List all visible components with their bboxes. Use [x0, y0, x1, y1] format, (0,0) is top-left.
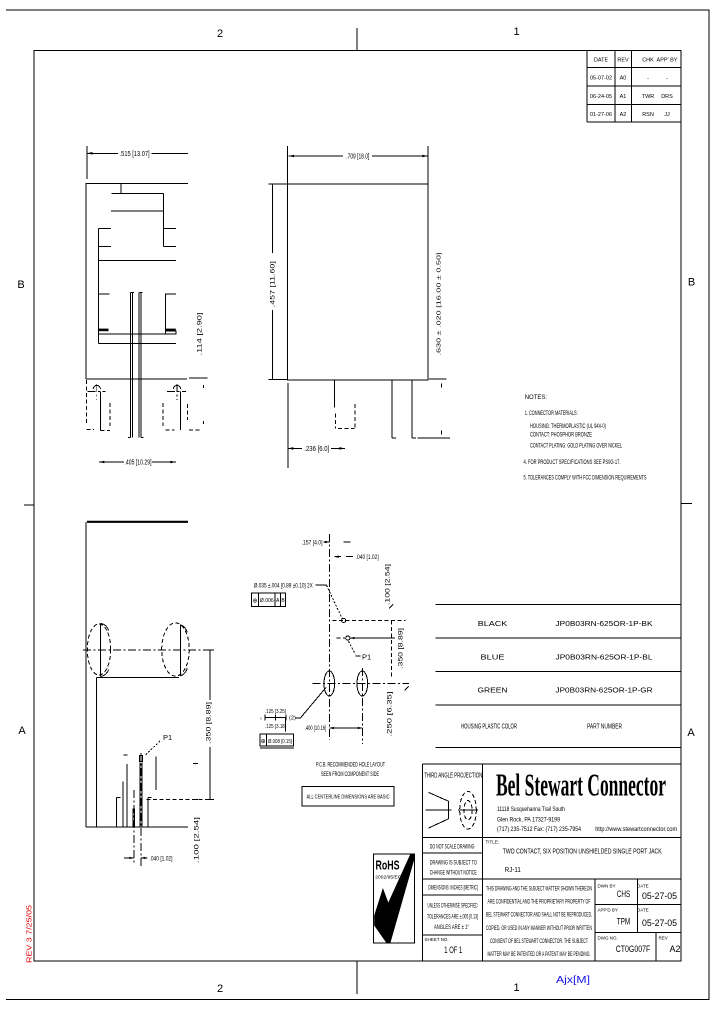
- svg-text:.515 [13.07]: .515 [13.07]: [120, 151, 150, 158]
- svg-text:.125 [3.18]: .125 [3.18]: [265, 724, 286, 730]
- svg-text:JP0B03RN-625OR-1P-GR: JP0B03RN-625OR-1P-GR: [556, 687, 653, 694]
- svg-text:.125 [3.25]: .125 [3.25]: [265, 709, 286, 715]
- svg-text:DWN BY: DWN BY: [598, 884, 616, 889]
- svg-text:RSN: RSN: [642, 112, 654, 118]
- svg-text:A2: A2: [620, 112, 627, 118]
- svg-text:Ø.006: Ø.006: [260, 598, 274, 604]
- svg-text:B: B: [688, 277, 695, 289]
- svg-text:2: 2: [217, 983, 223, 995]
- svg-text:.236 [6.0]: .236 [6.0]: [304, 446, 329, 453]
- svg-text:Ø.008 [0.15]: Ø.008 [0.15]: [268, 739, 293, 745]
- svg-text:P1: P1: [362, 653, 371, 662]
- svg-text:2: 2: [217, 28, 223, 40]
- svg-text:P.C.B. RECOMMENDED HOLE LAYOUT: P.C.B. RECOMMENDED HOLE LAYOUT: [316, 763, 385, 769]
- svg-text:CONTACT PLATING: GOLD PLATING: CONTACT PLATING: GOLD PLATING OVER NICKE…: [530, 444, 622, 450]
- svg-text:05-07-02: 05-07-02: [590, 76, 612, 82]
- svg-text:B: B: [17, 279, 24, 291]
- svg-text:1: 1: [513, 26, 519, 38]
- svg-text:1. CONNECTOR MATERIALS:: 1. CONNECTOR MATERIALS:: [525, 411, 578, 417]
- svg-text:.709 [18.0]: .709 [18.0]: [346, 154, 369, 161]
- svg-text:A1: A1: [620, 94, 627, 100]
- svg-text:JP0B03RN-625OR-1P-BL: JP0B03RN-625OR-1P-BL: [556, 654, 653, 661]
- svg-text:CT0G007F: CT0G007F: [616, 944, 651, 954]
- svg-text:1 OF 1: 1 OF 1: [444, 945, 462, 956]
- svg-text:APP'D BY: APP'D BY: [598, 908, 618, 913]
- svg-text:4. FOR PRODUCT SPECIFICATIONS: 4. FOR PRODUCT SPECIFICATIONS SEE PS0G-1…: [524, 460, 621, 466]
- svg-text:DATE: DATE: [637, 908, 649, 913]
- svg-text:BLACK: BLACK: [478, 621, 508, 628]
- svg-text:RoHS: RoHS: [376, 859, 400, 873]
- svg-text:APP' BY: APP' BY: [657, 58, 678, 64]
- svg-text:HOUSING PLASTIC COLOR: HOUSING PLASTIC COLOR: [461, 724, 517, 731]
- svg-text:TITLE:: TITLE:: [486, 840, 500, 845]
- svg-text:CONTACT: PHOSPHOR BRONZE: CONTACT: PHOSPHOR BRONZE: [530, 433, 592, 439]
- svg-text:CONSENT OF BEL STEWART CONNECT: CONSENT OF BEL STEWART CONNECTOR. THE SU…: [490, 938, 588, 945]
- svg-text:ANGLES ARE ± 1°: ANGLES ARE ± 1°: [434, 924, 469, 931]
- svg-text:THIRD ANGLE PROJECTION: THIRD ANGLE PROJECTION: [424, 773, 482, 780]
- svg-text:1: 1: [513, 982, 519, 994]
- svg-text:REV: REV: [659, 936, 668, 941]
- svg-text:(2): (2): [289, 716, 296, 722]
- svg-text:.040 [1.02]: .040 [1.02]: [356, 555, 379, 561]
- svg-text:-: -: [666, 76, 668, 82]
- svg-text:THIS DRAWING AND THE SUBJECT M: THIS DRAWING AND THE SUBJECT MATTER SHOW…: [486, 886, 592, 893]
- svg-text:BEL STEWART CONNECTOR AND SHAL: BEL STEWART CONNECTOR AND SHALL NOT BE R…: [486, 912, 592, 919]
- svg-text:.100 [2.54]: .100 [2.54]: [194, 817, 201, 863]
- svg-text:SHEET NO.: SHEET NO.: [425, 937, 449, 942]
- svg-text:GREEN: GREEN: [478, 687, 508, 694]
- svg-text:COPIED, OR USED IN ANY MANNER: COPIED, OR USED IN ANY MANNER WITHOUT PR…: [486, 925, 592, 932]
- svg-text:RJ-11: RJ-11: [505, 867, 521, 874]
- svg-text:ARE CONFIDENTIAL AND THE PROPR: ARE CONFIDENTIAL AND THE PROPRIETARY PRO…: [488, 899, 591, 906]
- svg-text:.405 [10.29]: .405 [10.29]: [125, 460, 152, 467]
- svg-text:DRAWING IS SUBJECT TO: DRAWING IS SUBJECT TO: [430, 859, 477, 866]
- svg-text:JP0B03RN-625OR-1P-BK: JP0B03RN-625OR-1P-BK: [556, 621, 653, 628]
- svg-text:.100 [2.54]: .100 [2.54]: [385, 564, 392, 605]
- svg-text:REV 3 7/25/05: REV 3 7/25/05: [27, 905, 34, 963]
- svg-text:BLUE: BLUE: [481, 654, 505, 661]
- svg-text:TWR: TWR: [642, 94, 655, 100]
- svg-text:CHANGE WITHOUT NOTICE: CHANGE WITHOUT NOTICE: [430, 870, 477, 877]
- svg-text:A0: A0: [620, 76, 627, 82]
- svg-text:05-27-05: 05-27-05: [642, 918, 677, 928]
- svg-text:.040 [1.02]: .040 [1.02]: [150, 856, 173, 863]
- svg-text:‹: ‹: [260, 716, 262, 722]
- svg-text:Bel Stewart Connector: Bel Stewart Connector: [496, 767, 666, 803]
- svg-text:(717) 235-7512 Fax: (717) 23: (717) 235-7512 Fax: (717) 235-7954: [497, 827, 582, 833]
- svg-text:01-27-06: 01-27-06: [590, 112, 612, 118]
- svg-text:⊕: ⊕: [261, 739, 266, 745]
- svg-text:.457 [11.60]: .457 [11.60]: [271, 261, 277, 307]
- svg-text:REV: REV: [617, 58, 629, 64]
- svg-text:Ø.035 ±.004 [0.89 ±0.10] 2X: Ø.035 ±.004 [0.89 ±0.10] 2X: [254, 584, 313, 590]
- svg-text:P1: P1: [163, 733, 172, 742]
- svg-text:PART NUMBER: PART NUMBER: [587, 724, 622, 731]
- svg-text:.114 [2.90]: .114 [2.90]: [198, 312, 204, 355]
- svg-text:NOTES:: NOTES:: [525, 395, 548, 401]
- svg-text:.350 [8.89]: .350 [8.89]: [206, 702, 213, 744]
- svg-text:DIMENSIONS: INCHES [METRIC]: DIMENSIONS: INCHES [METRIC]: [428, 884, 478, 891]
- svg-text:MATTER MAY BE PATENTED OR A PA: MATTER MAY BE PATENTED OR A PATENT MAY B…: [488, 951, 591, 958]
- svg-text:11118 Susquehanna Trail South: 11118 Susquehanna Trail South: [497, 807, 565, 813]
- svg-text:.630 ± .020 [16.00 ± 0.50]: .630 ± .020 [16.00 ± 0.50]: [437, 252, 443, 356]
- svg-text:DWG NO.: DWG NO.: [598, 936, 618, 941]
- svg-text:TWO CONTACT, SIX POSITION UNSH: TWO CONTACT, SIX POSITION UNSHIELDED SIN…: [503, 849, 662, 856]
- svg-text:2002/95/EC: 2002/95/EC: [375, 875, 402, 881]
- svg-text:Ajx[M]: Ajx[M]: [556, 975, 590, 986]
- svg-text:SEEN FROM COMPONENT SIDE: SEEN FROM COMPONENT SIDE: [321, 772, 379, 778]
- svg-text:Glen Rock, PA 17327-9199: Glen Rock, PA 17327-9199: [497, 817, 561, 823]
- svg-text:TPM: TPM: [617, 917, 631, 928]
- svg-text:CHS: CHS: [617, 889, 631, 900]
- svg-text:A: A: [18, 725, 26, 737]
- svg-text:http://www.stewartconnector.co: http://www.stewartconnector.com: [595, 827, 677, 833]
- svg-text:.250 [6.35]: .250 [6.35]: [387, 691, 394, 736]
- svg-text:-: -: [647, 76, 649, 82]
- svg-text:CHK: CHK: [642, 58, 654, 64]
- svg-text:⊕: ⊕: [252, 598, 257, 604]
- svg-text:5. TOLERANCES COMPLY WITH FCC: 5. TOLERANCES COMPLY WITH FCC DIMENSION …: [524, 476, 647, 482]
- svg-text:JJ: JJ: [664, 112, 670, 118]
- svg-text:.400 [10.16]: .400 [10.16]: [305, 726, 327, 732]
- svg-text:.350 [8.89]: .350 [8.89]: [397, 628, 404, 669]
- svg-text:ALL CENTERLINE DIMENSIONS ARE: ALL CENTERLINE DIMENSIONS ARE BASIC: [307, 795, 390, 801]
- svg-text:DRS: DRS: [661, 94, 673, 100]
- svg-text:DATE: DATE: [637, 884, 649, 889]
- svg-text:06-24-05: 06-24-05: [590, 94, 612, 100]
- svg-text:.157 [4.0]: .157 [4.0]: [302, 541, 323, 547]
- svg-text:HOUSING: THERMOPLASTIC (UL 94: HOUSING: THERMOPLASTIC (UL 94V-0): [530, 424, 606, 430]
- svg-text:UNLESS OTHERWISE SPECIFIED: UNLESS OTHERWISE SPECIFIED: [428, 902, 478, 909]
- svg-text:05-27-05: 05-27-05: [642, 891, 677, 901]
- svg-text:DATE: DATE: [594, 58, 609, 64]
- svg-text:A2: A2: [669, 944, 680, 954]
- svg-text:DO NOT SCALE DRAWING: DO NOT SCALE DRAWING: [430, 844, 475, 851]
- svg-text:TOLERANCES ARE ±.005 [0.13]: TOLERANCES ARE ±.005 [0.13]: [427, 914, 478, 921]
- svg-text:A: A: [687, 727, 695, 739]
